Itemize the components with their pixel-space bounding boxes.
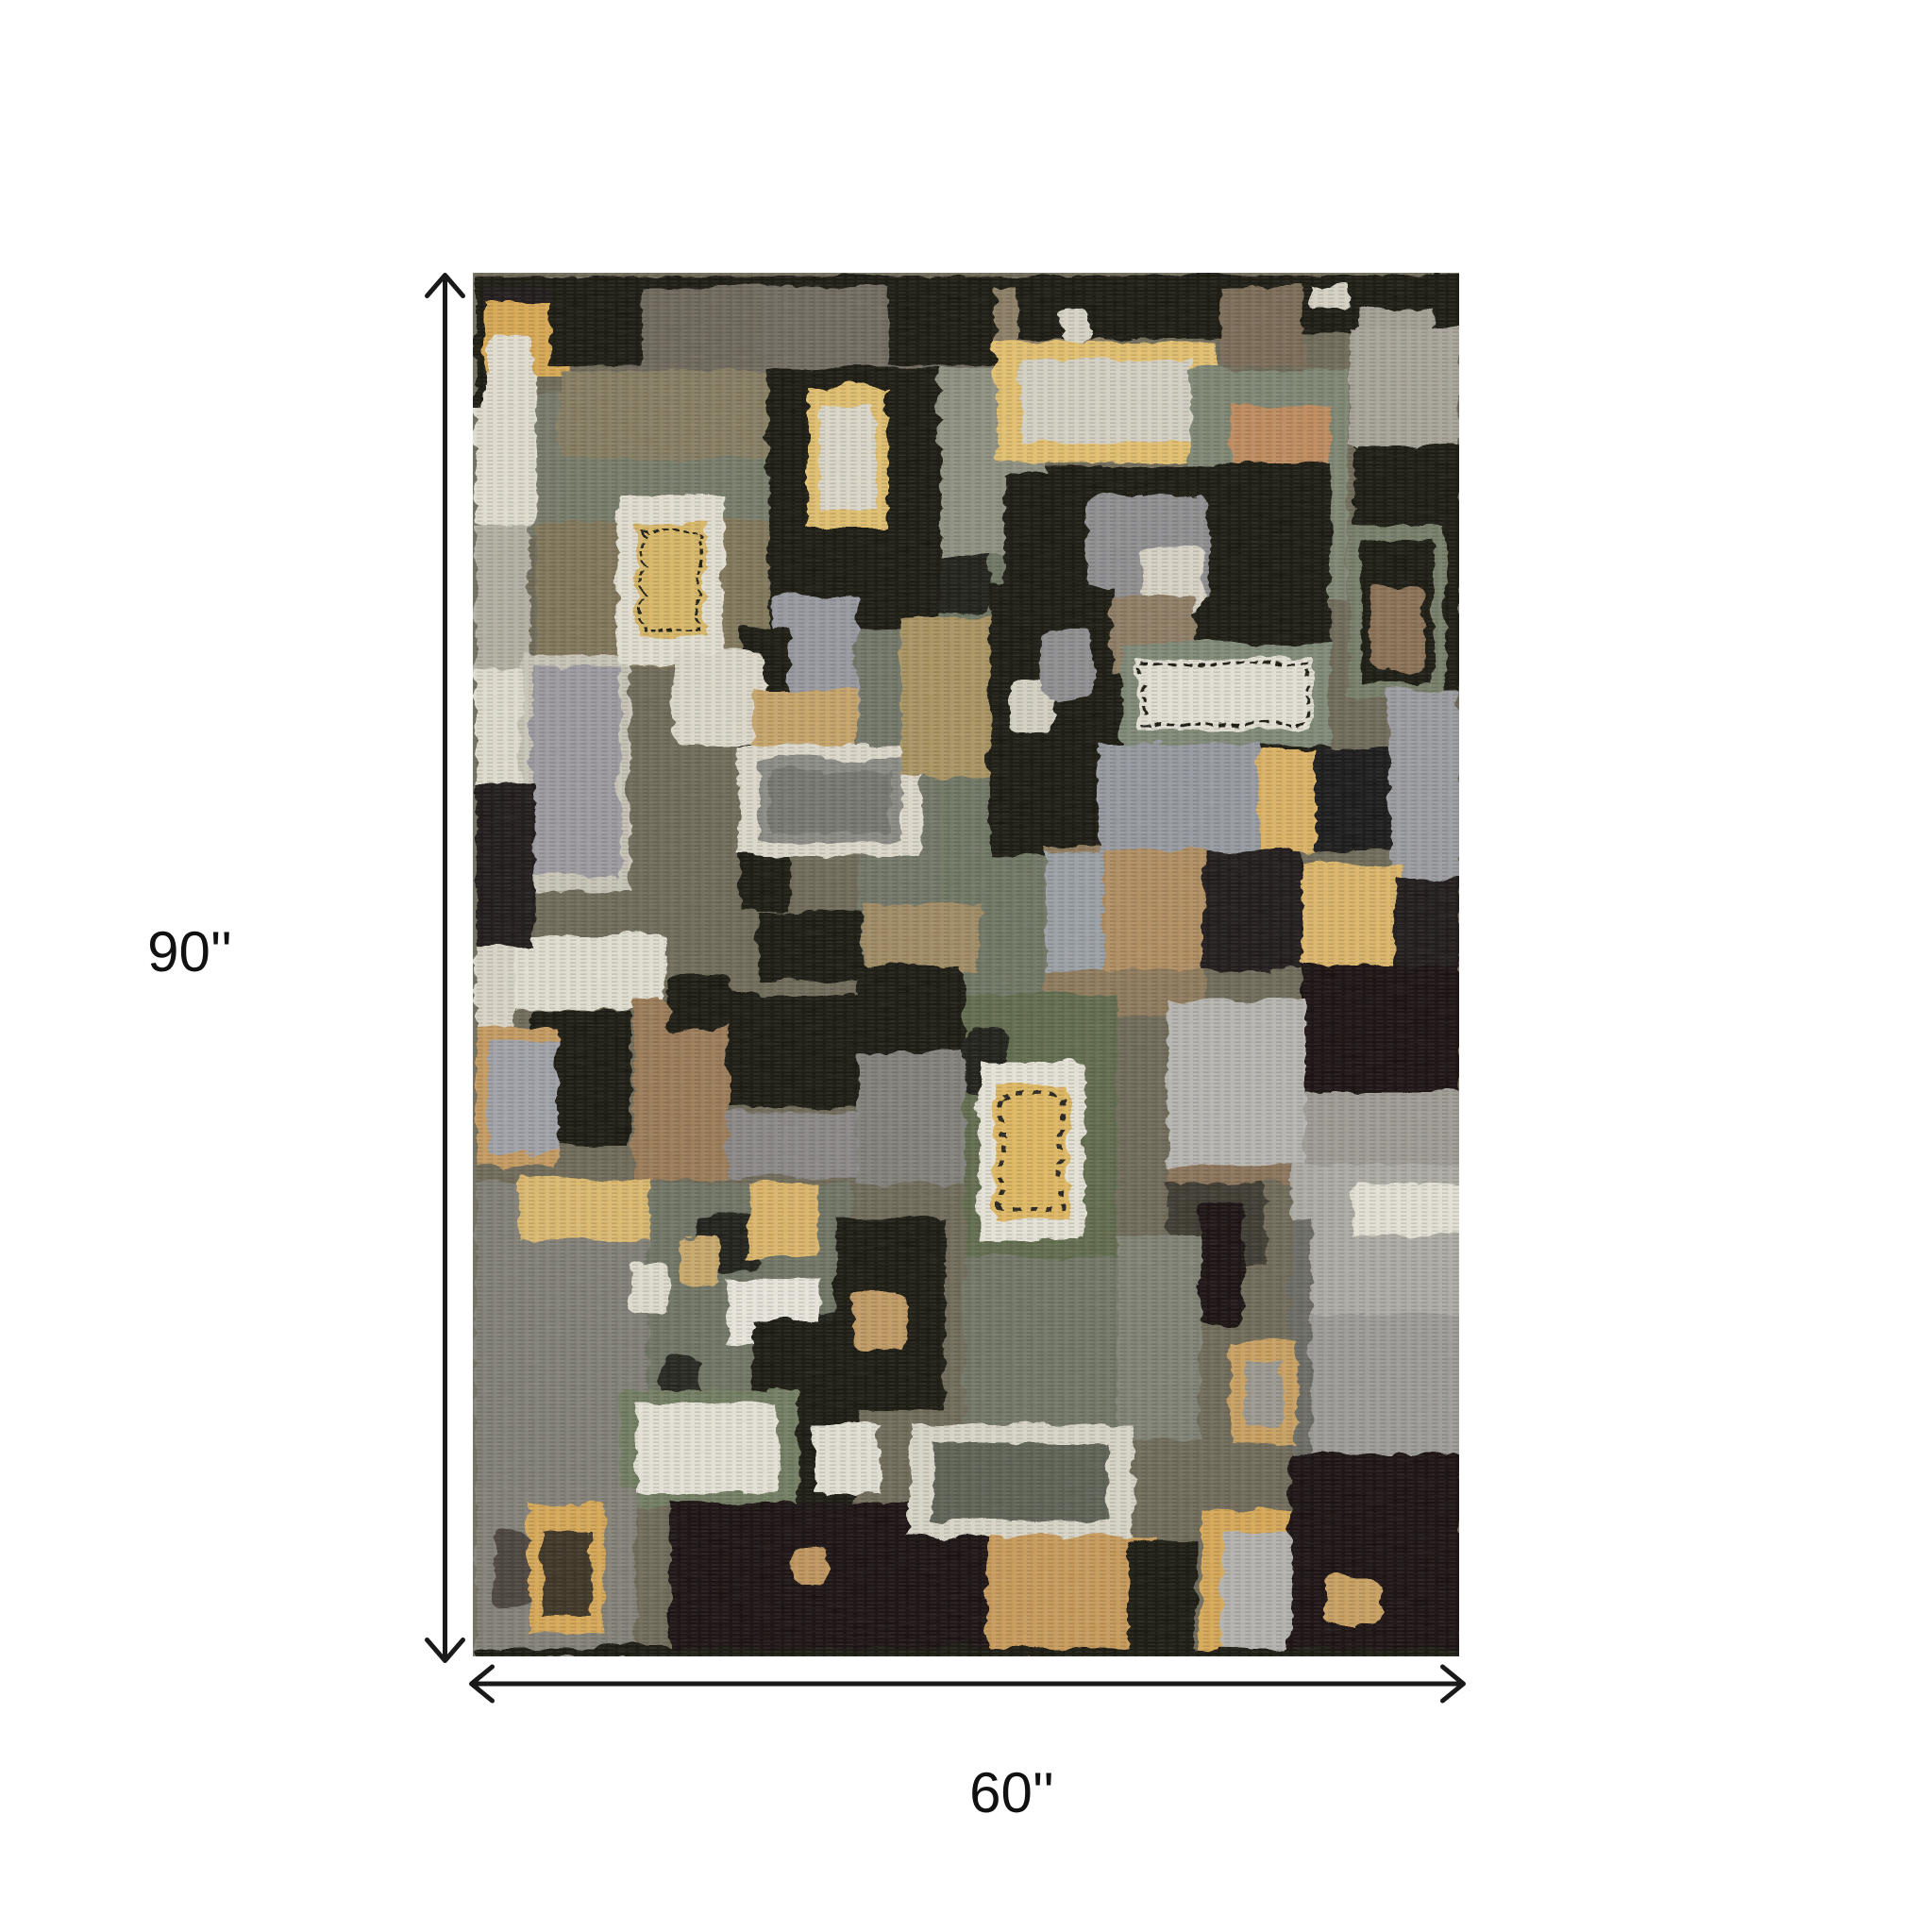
- svg-text:90'': 90'': [147, 920, 232, 983]
- svg-text:60'': 60'': [969, 1761, 1054, 1824]
